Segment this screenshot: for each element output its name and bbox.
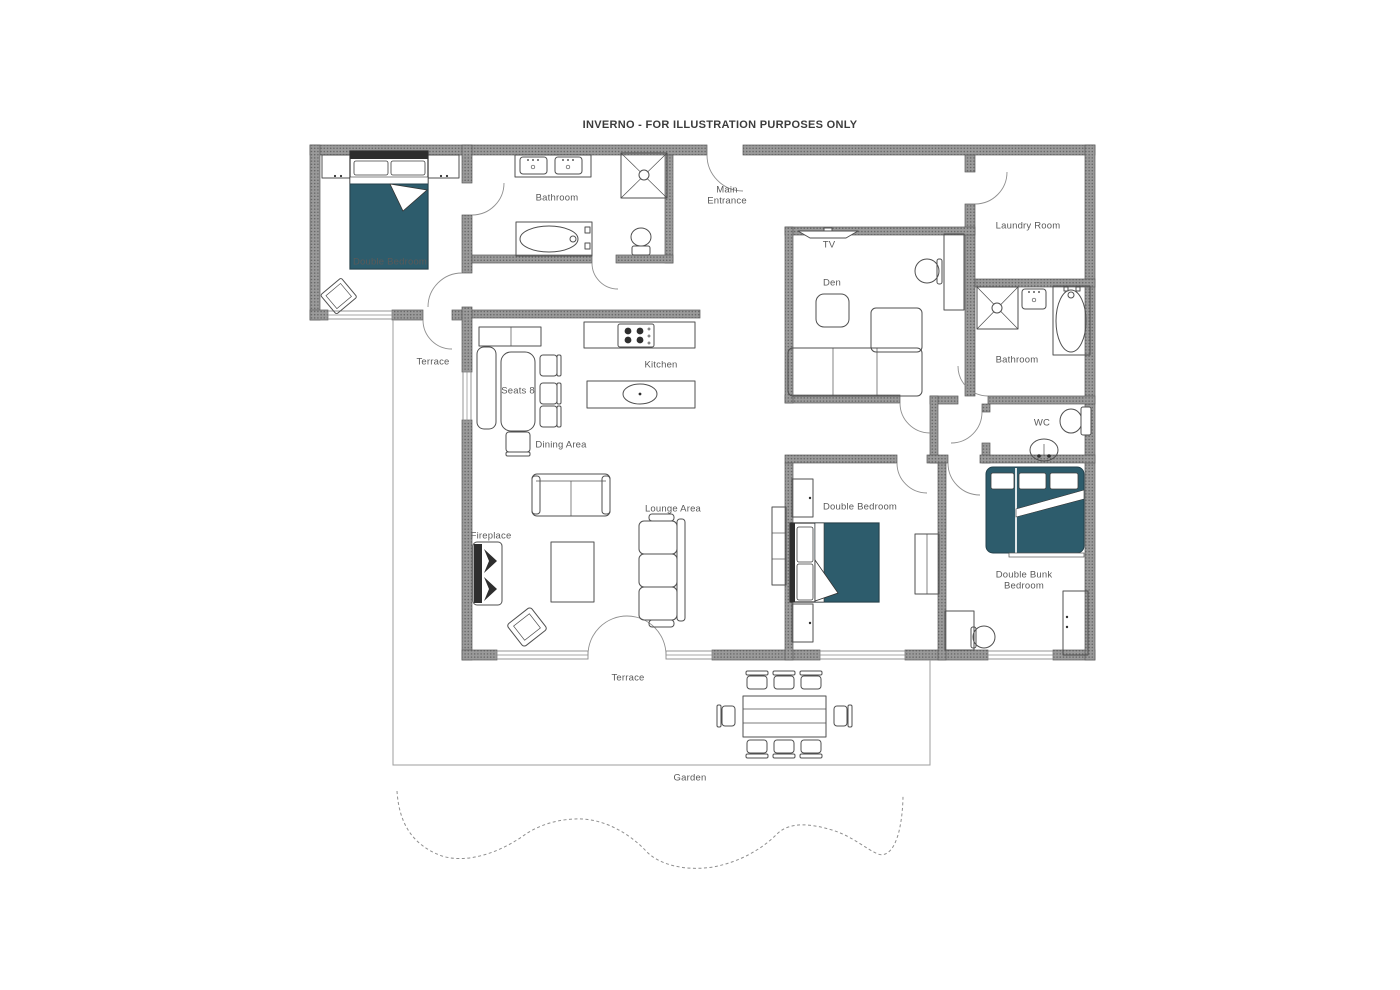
wardrobe [322, 155, 353, 178]
kitchen-island [587, 381, 695, 408]
sink [520, 157, 547, 174]
toilet [631, 228, 651, 255]
double-bed [790, 523, 879, 602]
sink [1022, 289, 1046, 309]
double-bed [350, 151, 428, 269]
room-label-dining-area: Dining Area [535, 440, 586, 451]
room-label-bathroom-right: Bathroom [996, 355, 1039, 366]
kitchen-fixtures [584, 322, 695, 408]
den-furniture [788, 228, 964, 396]
dining-chair [540, 406, 561, 427]
two-seat-sofa [532, 474, 610, 516]
shower [977, 287, 1018, 329]
room-label-double-bedroom-top: Double Bedroom [353, 257, 427, 268]
armchair [320, 278, 357, 315]
room-label-garden: Garden [674, 773, 707, 784]
stove [618, 324, 654, 347]
desk-chair [971, 626, 995, 648]
toilet [1060, 407, 1091, 435]
garden-chair [773, 671, 795, 689]
bathroom-top-fixtures [515, 153, 667, 256]
lounge-furniture [473, 474, 685, 647]
room-label-wc: WC [1034, 418, 1050, 429]
armchair [507, 607, 548, 648]
bedroom-top-left [320, 151, 459, 314]
dining-chair [540, 383, 561, 404]
room-label-laundry-room: Laundry Room [996, 221, 1061, 232]
wardrobe [772, 507, 786, 585]
wardrobe [428, 155, 459, 178]
dining-chair [540, 355, 561, 376]
side-table [816, 294, 849, 327]
coffee-table [551, 542, 594, 602]
label-fireplace: Fireplace [471, 531, 512, 542]
floorplan-drawing [0, 0, 1400, 990]
room-label-lounge-area: Lounge Area [645, 504, 701, 515]
garden-chair [746, 740, 768, 758]
nightstand [792, 479, 813, 517]
kitchen-counter [584, 322, 695, 348]
garden-table-set [717, 671, 852, 758]
corner-sofa [788, 308, 922, 396]
room-label-double-bunk-bedroom: Double Bunk Bedroom [978, 570, 1070, 593]
floorplan-canvas: INVERNO - FOR ILLUSTRATION PURPOSES ONLY… [0, 0, 1400, 990]
desk [944, 234, 964, 310]
label-dining-seats: Seats 8 [501, 386, 535, 397]
bathtub [1053, 286, 1090, 355]
nightstand [792, 604, 813, 642]
room-label-kitchen: Kitchen [644, 360, 677, 371]
desk-chair [915, 259, 942, 284]
sink [555, 157, 582, 174]
bunk-bedroom [945, 467, 1088, 655]
closet [915, 534, 939, 594]
bathroom-right-fixtures [977, 286, 1090, 355]
wardrobe [1063, 591, 1088, 655]
dining-chair [506, 432, 530, 456]
label-tv: TV [823, 240, 836, 251]
garden-chair [717, 705, 735, 727]
garden-edge-wavy-line [397, 791, 903, 868]
fireplace [473, 542, 502, 605]
garden-chair [746, 671, 768, 689]
room-label-bathroom-top: Bathroom [536, 193, 579, 204]
sideboard [479, 327, 541, 346]
garden-chair [773, 740, 795, 758]
garden-chair [800, 740, 822, 758]
garden-chair [834, 705, 852, 727]
bunk-bed [986, 467, 1084, 557]
room-label-den: Den [823, 278, 841, 289]
wc-fixtures [1030, 407, 1091, 461]
plan-title: INVERNO - FOR ILLUSTRATION PURPOSES ONLY [583, 119, 858, 131]
three-seat-sofa [639, 514, 685, 627]
bathtub [516, 222, 592, 256]
room-label-terrace-left: Terrace [416, 357, 449, 368]
desk [945, 611, 974, 650]
shower [621, 153, 667, 198]
room-label-terrace-bottom: Terrace [611, 673, 644, 684]
room-label-double-bedroom-bottom: Double Bedroom [823, 502, 897, 513]
bench [477, 347, 496, 429]
garden-chair [800, 671, 822, 689]
room-label-main-entrance: Main Entrance [696, 185, 758, 208]
